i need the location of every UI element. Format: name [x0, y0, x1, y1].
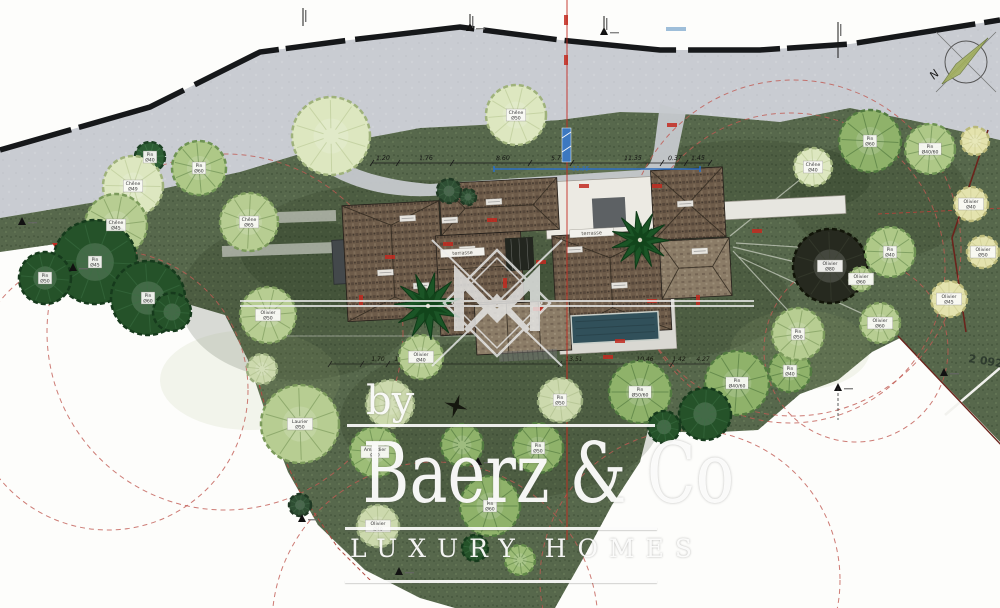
svg-text:Pin: Pin: [557, 395, 564, 401]
svg-text:Pin: Pin: [147, 152, 154, 158]
watermark-by: by: [366, 378, 414, 424]
svg-text:Olivier: Olivier: [854, 274, 869, 280]
svg-text:1.70: 1.70: [371, 356, 385, 363]
tree: [153, 293, 191, 331]
svg-text:Ø50: Ø50: [793, 333, 803, 340]
svg-text:Olivier: Olivier: [823, 261, 838, 267]
svg-text:Ø50/60: Ø50/60: [632, 391, 649, 398]
watermark-rule-bottom: [345, 580, 657, 583]
svg-text:Chêne: Chêne: [242, 216, 257, 223]
svg-text:Pin: Pin: [42, 273, 49, 279]
svg-text:Ø80: Ø80: [825, 265, 835, 272]
svg-text:Pin: Pin: [196, 163, 203, 169]
svg-text:Ø40: Ø40: [145, 156, 155, 163]
watermark-brand: Baerz & Co: [363, 424, 642, 522]
svg-text:Ø40: Ø40: [416, 356, 426, 363]
svg-text:Ø65: Ø65: [244, 221, 254, 228]
svg-text:terrasse: terrasse: [581, 230, 602, 237]
svg-text:Pin: Pin: [867, 136, 874, 142]
svg-text:Ø45: Ø45: [111, 224, 121, 231]
svg-text:1.76: 1.76: [419, 155, 433, 162]
svg-text:11.35: 11.35: [624, 155, 642, 163]
tree: [292, 97, 370, 175]
svg-text:Pin: Pin: [927, 144, 934, 150]
svg-text:Ø45: Ø45: [90, 261, 100, 268]
svg-text:11.35: 11.35: [572, 166, 589, 173]
svg-text:Pin: Pin: [637, 387, 644, 393]
svg-text:8.60: 8.60: [496, 155, 510, 162]
svg-text:Pin: Pin: [787, 366, 794, 372]
svg-text:Ø40: Ø40: [885, 251, 895, 258]
svg-text:Ø40: Ø40: [966, 203, 976, 210]
svg-text:terrasse: terrasse: [452, 250, 473, 257]
svg-text:Chêne: Chêne: [509, 109, 524, 116]
svg-text:Ø40/60: Ø40/60: [729, 382, 746, 389]
svg-text:1.20: 1.20: [376, 155, 390, 162]
watermark-rule-middle: [345, 527, 657, 530]
svg-text:13.51: 13.51: [565, 356, 582, 363]
svg-text:Ø50: Ø50: [978, 251, 988, 258]
svg-text:Ø60: Ø60: [194, 167, 204, 174]
svg-text:Pin: Pin: [887, 247, 894, 253]
tree: [460, 189, 476, 205]
svg-text:Ø60: Ø60: [143, 297, 153, 304]
svg-text:Ø50: Ø50: [40, 277, 50, 284]
svg-text:Olivier: Olivier: [414, 352, 429, 358]
svg-text:Ø40/60: Ø40/60: [922, 148, 939, 155]
svg-text:Olivier: Olivier: [942, 294, 957, 300]
svg-text:Chêne: Chêne: [126, 180, 141, 187]
tree: [247, 354, 277, 384]
svg-text:Ø49: Ø49: [128, 185, 138, 192]
svg-text:1.42: 1.42: [672, 356, 686, 363]
svg-text:Olivier: Olivier: [261, 310, 276, 316]
svg-text:Pin: Pin: [734, 378, 741, 384]
tree: [289, 494, 311, 516]
svg-text:Ø60: Ø60: [875, 322, 885, 329]
svg-text:Ø40: Ø40: [808, 166, 818, 173]
svg-text:Olivier: Olivier: [964, 199, 979, 205]
svg-text:Olivier: Olivier: [873, 318, 888, 324]
svg-text:Ø50: Ø50: [555, 399, 565, 406]
svg-text:Ø45: Ø45: [944, 298, 954, 305]
tree: [961, 127, 989, 155]
svg-text:Ø60: Ø60: [865, 140, 875, 147]
site-plan-page: terrasseterrasse1.201.768.605.7411.350.3…: [0, 0, 1000, 608]
svg-text:Ø60: Ø60: [856, 278, 866, 285]
watermark-tagline: LUXURY HOMES: [350, 534, 670, 563]
svg-text:Pin: Pin: [92, 257, 99, 263]
svg-text:Pin: Pin: [795, 329, 802, 335]
svg-text:Ø50: Ø50: [263, 314, 273, 321]
svg-text:Olivier: Olivier: [976, 247, 991, 253]
svg-text:0.37: 0.37: [668, 155, 682, 162]
tree: [437, 179, 461, 203]
svg-text:Laurier: Laurier: [292, 419, 308, 425]
svg-text:Ø50: Ø50: [295, 423, 305, 430]
svg-text:Ø40: Ø40: [785, 370, 795, 377]
svg-text:Ø50: Ø50: [511, 114, 521, 121]
svg-text:1.45: 1.45: [691, 155, 705, 162]
svg-text:4.27: 4.27: [696, 356, 710, 363]
svg-text:Pin: Pin: [145, 293, 152, 299]
svg-text:Chêne: Chêne: [806, 161, 821, 168]
svg-text:Chêne: Chêne: [109, 219, 124, 226]
